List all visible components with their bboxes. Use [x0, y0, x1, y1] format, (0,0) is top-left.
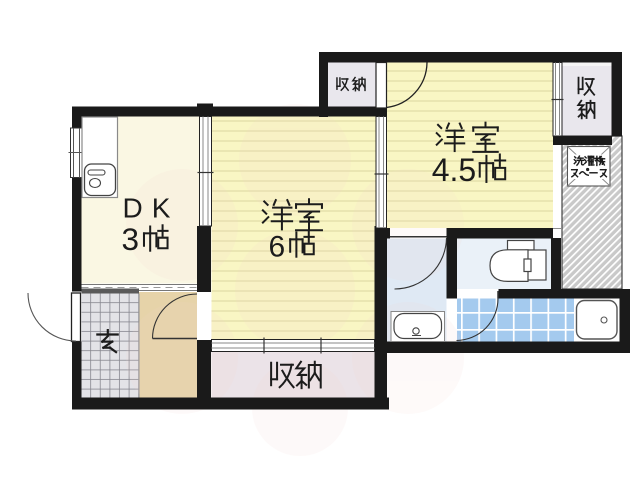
svg-text:3: 3	[122, 221, 140, 257]
svg-text:DK: DK	[123, 193, 180, 224]
svg-text:4.5: 4.5	[432, 152, 476, 188]
svg-text:6: 6	[269, 231, 286, 264]
